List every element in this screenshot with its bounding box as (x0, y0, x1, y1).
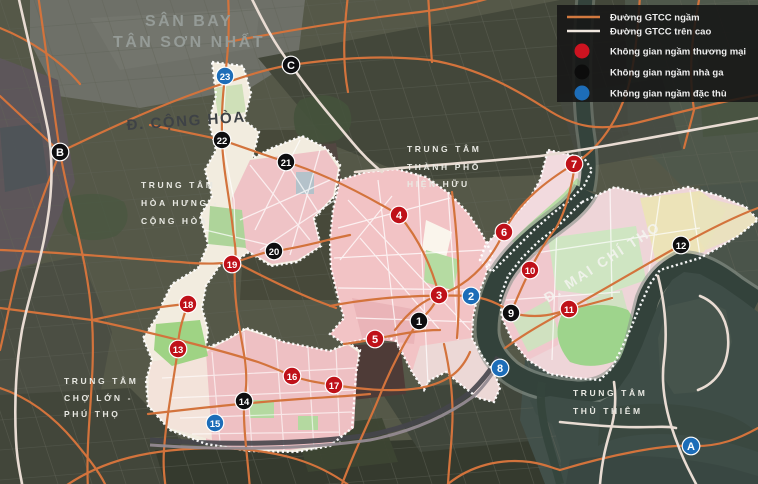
svg-text:9: 9 (508, 308, 514, 320)
svg-text:B: B (56, 147, 64, 159)
svg-text:22: 22 (217, 136, 228, 147)
svg-text:TRUNG TÂM: TRUNG TÂM (141, 179, 215, 190)
svg-text:TRUNG TÂM: TRUNG TÂM (573, 387, 647, 398)
svg-text:13: 13 (173, 345, 184, 356)
svg-text:15: 15 (210, 419, 221, 430)
svg-text:21: 21 (281, 158, 292, 169)
svg-text:14: 14 (239, 397, 250, 408)
svg-text:CỘNG HÒA: CỘNG HÒA (141, 215, 209, 226)
svg-text:HIỆN HỮU: HIỆN HỮU (407, 178, 470, 189)
svg-text:HÒA HƯNG -: HÒA HƯNG - (141, 197, 219, 208)
svg-text:19: 19 (227, 260, 238, 271)
svg-text:SÂN BAY: SÂN BAY (145, 11, 233, 30)
svg-text:A: A (687, 441, 695, 453)
svg-text:2: 2 (468, 291, 474, 303)
svg-text:7: 7 (571, 159, 577, 171)
svg-text:CHỢ LỚN -: CHỢ LỚN - (64, 392, 133, 403)
svg-text:Không gian ngầm đặc thù: Không gian ngầm đặc thù (610, 89, 727, 100)
svg-text:Đường GTCC ngầm: Đường GTCC ngầm (610, 13, 700, 24)
svg-text:C: C (287, 60, 295, 72)
svg-text:THÀNH PHỐ: THÀNH PHỐ (407, 161, 481, 172)
svg-text:4: 4 (396, 210, 403, 222)
svg-text:8: 8 (497, 363, 503, 375)
svg-text:PHÚ THỌ: PHÚ THỌ (64, 408, 120, 419)
svg-text:18: 18 (183, 300, 194, 311)
svg-text:THỦ THIÊM: THỦ THIÊM (573, 405, 643, 416)
svg-text:20: 20 (269, 247, 280, 258)
svg-text:12: 12 (676, 241, 687, 252)
svg-text:23: 23 (220, 72, 231, 83)
svg-text:16: 16 (287, 372, 298, 383)
svg-text:TRUNG TÂM: TRUNG TÂM (64, 375, 138, 386)
svg-text:Đường GTCC trên cao: Đường GTCC trên cao (610, 27, 711, 38)
svg-text:1: 1 (416, 316, 422, 328)
svg-text:5: 5 (372, 334, 378, 346)
svg-text:3: 3 (436, 290, 442, 302)
svg-text:17: 17 (329, 381, 340, 392)
svg-text:Không gian ngầm nhà ga: Không gian ngầm nhà ga (610, 68, 724, 79)
svg-text:6: 6 (501, 227, 507, 239)
svg-text:TÂN SƠN NHẤT: TÂN SƠN NHẤT (113, 32, 265, 51)
svg-text:TRUNG TÂM: TRUNG TÂM (407, 143, 481, 154)
svg-text:Không gian ngầm thương mại: Không gian ngầm thương mại (610, 47, 746, 58)
svg-text:10: 10 (525, 266, 536, 277)
svg-text:11: 11 (564, 305, 575, 316)
